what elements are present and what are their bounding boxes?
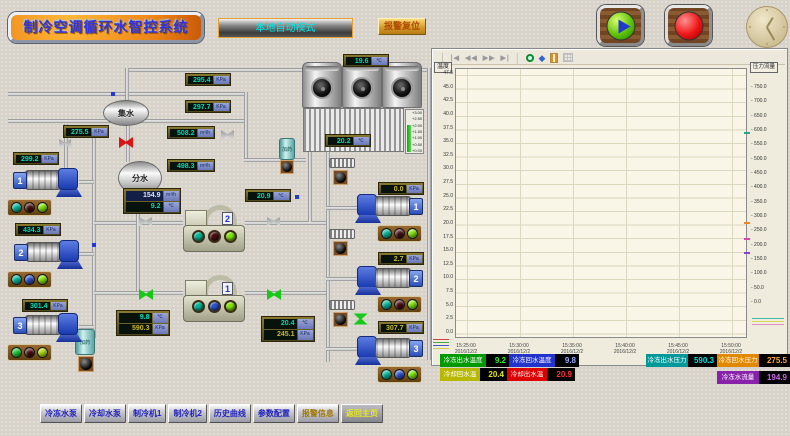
status-light bbox=[11, 202, 22, 213]
start-button[interactable] bbox=[597, 5, 644, 46]
gauge-pump1-pressure: 299.2 KPa bbox=[13, 152, 59, 165]
bottom-nav: 冷冻水泵 冷却水泵 制冷机1 制冷机2 历史曲线 参数配置 报警信息 返回主页 bbox=[40, 404, 383, 423]
gauge-unit: ℃ bbox=[274, 192, 289, 200]
readout-value: 590.3 bbox=[688, 354, 717, 367]
right-pen-legend bbox=[752, 318, 784, 325]
gauge-unit: KPa bbox=[214, 76, 229, 84]
axis-tick: 15.0 bbox=[443, 248, 453, 253]
value-marker bbox=[744, 252, 750, 254]
fan-icon bbox=[311, 77, 333, 99]
pipe bbox=[245, 291, 330, 295]
status-light bbox=[208, 300, 221, 313]
axis-tick: - 450.0 bbox=[751, 171, 767, 176]
pump-number: 1 bbox=[13, 172, 27, 189]
axis-tick: 37.5 bbox=[443, 126, 453, 131]
zoom-icon[interactable] bbox=[526, 54, 534, 62]
gauge-unit: m³/h bbox=[198, 129, 213, 137]
last-page-icon[interactable]: ▶| bbox=[501, 54, 510, 62]
pipe bbox=[92, 126, 96, 338]
nav-parameter-config[interactable]: 参数配置 bbox=[253, 404, 295, 423]
mode-button[interactable]: 本地自动模式 bbox=[218, 18, 353, 38]
cooling-pump-1[interactable]: 1 bbox=[357, 193, 423, 223]
pipe bbox=[308, 152, 312, 222]
gauge-value: 20.9 bbox=[248, 192, 273, 200]
left-axis-ticks: 47.545.042.540.037.535.032.530.027.525.0… bbox=[429, 71, 453, 335]
axis-tick: 42.5 bbox=[443, 98, 453, 103]
pan-icon[interactable]: ◆ bbox=[539, 54, 546, 62]
pump-volute bbox=[357, 194, 377, 216]
flex-connector bbox=[329, 229, 355, 239]
level-scale-mark: +0.00 bbox=[412, 148, 422, 153]
status-light bbox=[381, 369, 392, 380]
pump-number: 3 bbox=[409, 340, 423, 357]
pipe bbox=[94, 291, 183, 295]
pipe bbox=[244, 158, 306, 162]
chiller-1[interactable]: 1 bbox=[183, 275, 245, 325]
gauge-value: 275.5 bbox=[66, 128, 91, 136]
gauge-pump3-pressure: 301.4 KPa bbox=[22, 299, 68, 312]
check-valve bbox=[333, 312, 348, 327]
status-light bbox=[24, 347, 35, 358]
chilled-pump-3-lights bbox=[7, 344, 52, 361]
status-light bbox=[407, 228, 418, 239]
collector-tank: 集水 bbox=[103, 100, 149, 126]
chilled-pump-3[interactable]: 3 bbox=[13, 312, 79, 342]
pump-base bbox=[56, 334, 82, 342]
sensor-dot bbox=[295, 195, 299, 199]
valve-green[interactable] bbox=[354, 314, 368, 325]
readout-label: 冷却出水温 bbox=[507, 368, 547, 381]
level-bar bbox=[407, 125, 411, 152]
sensor-dot bbox=[92, 243, 96, 247]
readout-label: 冷冻回水温度 bbox=[509, 354, 555, 367]
nav-cooling-pumps[interactable]: 冷却水泵 bbox=[84, 404, 126, 423]
minute-hand bbox=[766, 27, 775, 41]
gauge-cooling-return: 20.4 ℃ 245.1 KPa bbox=[261, 316, 315, 342]
pump-volute bbox=[357, 336, 377, 358]
axis-tick: 45.0 bbox=[443, 85, 453, 90]
axis-tick: - 500.0 bbox=[751, 157, 767, 162]
level-scale-mark: +1.00 bbox=[412, 135, 422, 140]
gauge-pump2-pressure: 434.3 KPa bbox=[15, 223, 61, 236]
pump-motor bbox=[26, 242, 62, 262]
gauge-unit: KPa bbox=[407, 185, 422, 193]
readout-value: 194.9 bbox=[759, 371, 790, 384]
chilled-pump-1-lights bbox=[7, 199, 52, 216]
gauge-cooling-supply-flow: 508.2 m³/h bbox=[167, 126, 215, 139]
status-light bbox=[394, 228, 405, 239]
gauge-value: 301.4 bbox=[25, 302, 50, 310]
readout-cooling-out-temp: 冷却出水温 20.9 bbox=[507, 368, 575, 381]
readout-label: 冷冻出水压力 bbox=[646, 354, 688, 367]
axis-tick: - 300.0 bbox=[751, 214, 767, 219]
page-title: 制冷空调循环水智控系统 bbox=[8, 12, 204, 43]
chiller-lights bbox=[192, 300, 237, 313]
readout-label: 冷冻出水温度 bbox=[440, 354, 486, 367]
status-light bbox=[11, 347, 22, 358]
stop-icon bbox=[674, 11, 703, 40]
gauge-value: 9.8 bbox=[119, 313, 152, 323]
nav-chiller-2[interactable]: 制冷机2 bbox=[168, 404, 206, 423]
axis-tick: 40.0 bbox=[443, 112, 453, 117]
status-light bbox=[381, 228, 392, 239]
pump-base bbox=[57, 261, 83, 269]
gauge-value: 297.7 bbox=[188, 103, 213, 111]
cooling-pump-3-lights bbox=[377, 366, 422, 383]
readout-value: 20.4 bbox=[480, 368, 507, 381]
gauge-tower-out-temp: 19.6 ℃ bbox=[343, 54, 389, 67]
axis-tick: 22.5 bbox=[443, 207, 453, 212]
pipe bbox=[326, 277, 357, 281]
tower-level-scale: +3.00+2.50+2.00+1.50+1.00+0.50+0.00 bbox=[412, 110, 422, 153]
dosing-tank: 加药 bbox=[279, 138, 295, 160]
status-light bbox=[407, 299, 418, 310]
gauge-value: 0.0 bbox=[381, 185, 406, 193]
left-pen-legend bbox=[433, 339, 449, 349]
cooling-tower-2[interactable] bbox=[342, 62, 382, 108]
gauge-rpump3-pressure: 307.7 KPa bbox=[378, 321, 424, 334]
axis-tick: - 150.0 bbox=[751, 257, 767, 262]
first-page-icon[interactable]: |◀ bbox=[451, 54, 460, 62]
chilled-pump-1[interactable]: 1 bbox=[13, 167, 79, 197]
pump-volute bbox=[58, 313, 78, 335]
gauge-value: 299.2 bbox=[16, 155, 41, 163]
axis-tick: 25.0 bbox=[443, 194, 453, 199]
axis-tick: - 200.0 bbox=[751, 243, 767, 248]
rewind-icon[interactable]: ◀◀ bbox=[465, 54, 478, 62]
axis-tick: - 100.0 bbox=[751, 271, 767, 276]
gauge-cooling-out-temp: 20.9 ℃ bbox=[245, 189, 291, 202]
status-light bbox=[192, 230, 205, 243]
readout-chilled-return-temp: 冷冻回水温度 9.8 bbox=[509, 354, 579, 367]
nav-home[interactable]: 返回主页 bbox=[341, 404, 383, 423]
pump-volute bbox=[58, 168, 78, 190]
status-light bbox=[208, 230, 221, 243]
value-marker bbox=[744, 238, 750, 240]
level-scale-mark: +3.00 bbox=[412, 110, 422, 115]
axis-tick: 10.0 bbox=[443, 275, 453, 280]
axis-tick: - 700.0 bbox=[751, 99, 767, 104]
grid-icon[interactable] bbox=[563, 53, 573, 62]
readout-label: 冷却回水温 bbox=[440, 368, 480, 381]
chart-toolbar: │ |◀ ◀◀ ▶▶ ▶| │ ◆ bbox=[434, 51, 785, 65]
status-light bbox=[37, 347, 48, 358]
right-axis-label: 压力流量 bbox=[750, 62, 778, 73]
pump-number: 3 bbox=[13, 317, 27, 334]
gauge-value: 20.2 bbox=[328, 137, 353, 145]
gauge-unit: KPa bbox=[51, 302, 66, 310]
axis-tick: 20.0 bbox=[443, 221, 453, 226]
alarm-reset-button[interactable]: 报警复位 bbox=[378, 18, 426, 35]
level-scale-mark: +0.50 bbox=[412, 142, 422, 147]
trend-plot-area bbox=[455, 68, 747, 338]
pipe bbox=[326, 347, 357, 351]
chiller-2[interactable]: 2 bbox=[183, 205, 245, 255]
axis-tick: - 250.0 bbox=[751, 228, 767, 233]
gauge-value: 295.4 bbox=[188, 76, 213, 84]
check-valve bbox=[78, 356, 94, 372]
forward-icon[interactable]: ▶▶ bbox=[483, 54, 496, 62]
pump-base bbox=[56, 189, 82, 197]
value-marker bbox=[744, 132, 750, 134]
gauge-unit: KPa bbox=[42, 155, 57, 163]
status-light bbox=[37, 202, 48, 213]
status-light bbox=[224, 230, 237, 243]
readout-label: 冷冻水流量 bbox=[717, 371, 759, 384]
axis-tick: 7.5 bbox=[446, 289, 453, 294]
gauge-value: 2.7 bbox=[381, 255, 406, 263]
pipe bbox=[244, 92, 248, 162]
readout-label: 冷冻回水压力 bbox=[717, 354, 759, 367]
readout-chilled-return-pressure: 冷冻回水压力 275.5 bbox=[717, 354, 790, 367]
check-valve bbox=[280, 160, 294, 174]
nav-history-trend[interactable]: 历史曲线 bbox=[209, 404, 251, 423]
gauge-unit: KPa bbox=[214, 103, 229, 111]
status-light bbox=[394, 299, 405, 310]
gauge-value: 590.3 bbox=[119, 324, 152, 334]
pipe bbox=[125, 68, 129, 100]
gauge-value: 20.4 bbox=[264, 319, 297, 329]
gauge-value: 307.7 bbox=[381, 324, 406, 332]
pump-base bbox=[355, 215, 381, 223]
cooling-pump-1-lights bbox=[377, 225, 422, 242]
axis-tick: 32.5 bbox=[443, 153, 453, 158]
readout-value: 20.9 bbox=[547, 368, 575, 381]
chiller-number: 2 bbox=[222, 212, 233, 225]
readout-value: 9.8 bbox=[555, 354, 579, 367]
gauge-unit: KPa bbox=[407, 255, 422, 263]
status-light bbox=[37, 274, 48, 285]
check-valve bbox=[333, 170, 348, 185]
level-scale-mark: +1.50 bbox=[412, 129, 422, 134]
stop-button[interactable] bbox=[665, 5, 712, 46]
axis-tick: 5.0 bbox=[446, 303, 453, 308]
pipe bbox=[326, 150, 330, 362]
flex-connector bbox=[329, 158, 355, 168]
gauge-unit: KPa bbox=[92, 128, 107, 136]
gauge-value: 498.3 bbox=[170, 162, 197, 170]
gauge-unit: ℃ bbox=[372, 57, 387, 65]
axis-tick: - 50.0 bbox=[751, 286, 764, 291]
readout-value: 275.5 bbox=[759, 354, 790, 367]
readout-cooling-return-temp: 冷却回水温 20.4 bbox=[440, 368, 507, 381]
gauge-unit: KPa bbox=[407, 324, 422, 332]
level-scale-mark: +2.50 bbox=[412, 116, 422, 121]
valve[interactable] bbox=[221, 130, 234, 140]
status-light bbox=[407, 369, 418, 380]
pump-motor bbox=[375, 196, 411, 216]
gauge-rpump1-pressure: 0.0 KPa bbox=[378, 182, 424, 195]
gauge-chilled-flow-temp: 154.9 m³/h 9.2 ℃ bbox=[123, 188, 181, 214]
readout-chilled-out-pressure: 冷冻出水压力 590.3 bbox=[646, 354, 717, 367]
axis-tick: 17.5 bbox=[443, 235, 453, 240]
readout-value: 9.2 bbox=[486, 354, 509, 367]
pump-motor bbox=[375, 268, 411, 288]
right-axis-ticks: - 750.0- 700.0- 650.0- 600.0- 550.0- 500… bbox=[751, 85, 777, 305]
cooling-pump-2-lights bbox=[377, 296, 422, 313]
axis-tick: - 400.0 bbox=[751, 185, 767, 190]
cooling-tower-3[interactable] bbox=[382, 62, 422, 108]
pump-base bbox=[355, 357, 381, 365]
sensor-dot bbox=[111, 92, 115, 96]
fan-icon bbox=[391, 77, 413, 99]
start-icon bbox=[606, 11, 635, 40]
level-gauge: +3.00+2.50+2.00+1.50+1.00+0.50+0.00 bbox=[405, 109, 424, 154]
pump-number: 2 bbox=[409, 270, 423, 287]
gauge-value: 434.3 bbox=[18, 226, 43, 234]
gauge-unit: ℃ bbox=[153, 313, 168, 323]
axis-tick: 12.5 bbox=[443, 262, 453, 267]
clock-widget bbox=[746, 6, 788, 48]
hmi-screen: 制冷空调循环水智控系统 本地自动模式 报警复位 集水 分水 加药 加药 bbox=[0, 0, 790, 436]
level-scale-mark: +2.00 bbox=[412, 123, 422, 128]
gauge-unit: KPa bbox=[153, 324, 168, 334]
axis-tick: - 550.0 bbox=[751, 142, 767, 147]
axis-tick: 2.5 bbox=[446, 316, 453, 321]
pump-base bbox=[355, 287, 381, 295]
gauge-chilled-return: 9.8 ℃ 590.3 KPa bbox=[116, 310, 170, 336]
fan-icon bbox=[351, 77, 373, 99]
status-light bbox=[192, 300, 205, 313]
gauge-cooling-return-pressure: 297.7 KPa bbox=[185, 100, 231, 113]
cooling-pump-3[interactable]: 3 bbox=[357, 335, 423, 365]
pipe bbox=[79, 180, 94, 184]
pipe bbox=[79, 252, 94, 256]
pump-number: 1 bbox=[409, 198, 423, 215]
status-light bbox=[394, 369, 405, 380]
status-light bbox=[11, 274, 22, 285]
pause-icon[interactable] bbox=[550, 53, 558, 63]
status-light bbox=[24, 202, 35, 213]
nav-chiller-1[interactable]: 制冷机1 bbox=[128, 404, 166, 423]
nav-chilled-pumps[interactable]: 冷冻水泵 bbox=[40, 404, 82, 423]
status-light bbox=[381, 299, 392, 310]
pump-motor bbox=[375, 338, 411, 358]
status-light bbox=[24, 274, 35, 285]
gauge-value: 19.6 bbox=[346, 57, 371, 65]
check-valve bbox=[333, 241, 348, 256]
axis-tick: - 650.0 bbox=[751, 114, 767, 119]
axis-tick: 0.0 bbox=[446, 330, 453, 335]
pump-motor bbox=[25, 315, 61, 335]
gauge-unit: ℃ bbox=[298, 319, 313, 329]
gauge-value: 9.2 bbox=[126, 202, 163, 212]
nav-alarm-info[interactable]: 报警信息 bbox=[297, 404, 339, 423]
axis-tick: 27.5 bbox=[443, 180, 453, 185]
cooling-pump-2[interactable]: 2 bbox=[357, 265, 423, 295]
pump-motor bbox=[25, 170, 61, 190]
gauge-rpump2-pressure: 2.7 KPa bbox=[378, 252, 424, 265]
readout-chilled-out-temp: 冷冻出水温度 9.2 bbox=[440, 354, 509, 367]
readout-chilled-flow: 冷冻水流量 194.9 bbox=[717, 371, 790, 384]
gauge-cooling-return-flow: 498.3 m³/h bbox=[167, 159, 215, 172]
gauge-basin-temp: 20.2 ℃ bbox=[325, 134, 371, 147]
axis-tick: - 350.0 bbox=[751, 200, 767, 205]
gauge-value: 154.9 bbox=[126, 191, 163, 201]
axis-tick: 35.0 bbox=[443, 139, 453, 144]
pump-volute bbox=[59, 240, 79, 262]
flex-connector bbox=[329, 300, 355, 310]
time-axis-label: 15:40:002016/12/2 bbox=[600, 343, 650, 355]
gauge-unit: ℃ bbox=[354, 137, 369, 145]
gauge-value: 245.1 bbox=[264, 330, 297, 340]
pipe bbox=[326, 206, 357, 210]
gauge-value: 508.2 bbox=[170, 129, 197, 137]
axis-tick: - 0.0 bbox=[751, 300, 761, 305]
chiller-lights bbox=[192, 230, 237, 243]
axis-tick: 30.0 bbox=[443, 166, 453, 171]
chilled-pump-2[interactable]: 2 bbox=[14, 239, 80, 269]
gauge-unit: ℃ bbox=[164, 202, 179, 212]
value-marker bbox=[744, 222, 750, 224]
axis-tick: - 750.0 bbox=[751, 85, 767, 90]
pipe bbox=[245, 221, 330, 225]
cooling-tower-1[interactable] bbox=[302, 62, 342, 108]
gauge-unit: m³/h bbox=[198, 162, 213, 170]
axis-tick: 47.5 bbox=[443, 71, 453, 76]
chilled-pump-2-lights bbox=[7, 271, 52, 288]
axis-tick: - 600.0 bbox=[751, 128, 767, 133]
chiller-number: 1 bbox=[222, 282, 233, 295]
status-light bbox=[224, 300, 237, 313]
gauge-unit: KPa bbox=[298, 330, 313, 340]
gauge-chilled-return-pressure: 275.5 KPa bbox=[63, 125, 109, 138]
gauge-unit: KPa bbox=[44, 226, 59, 234]
gauge-unit: m³/h bbox=[164, 191, 179, 201]
pump-number: 2 bbox=[14, 244, 28, 261]
pump-volute bbox=[357, 266, 377, 288]
gauge-cooling-supply-pressure: 295.4 KPa bbox=[185, 73, 231, 86]
